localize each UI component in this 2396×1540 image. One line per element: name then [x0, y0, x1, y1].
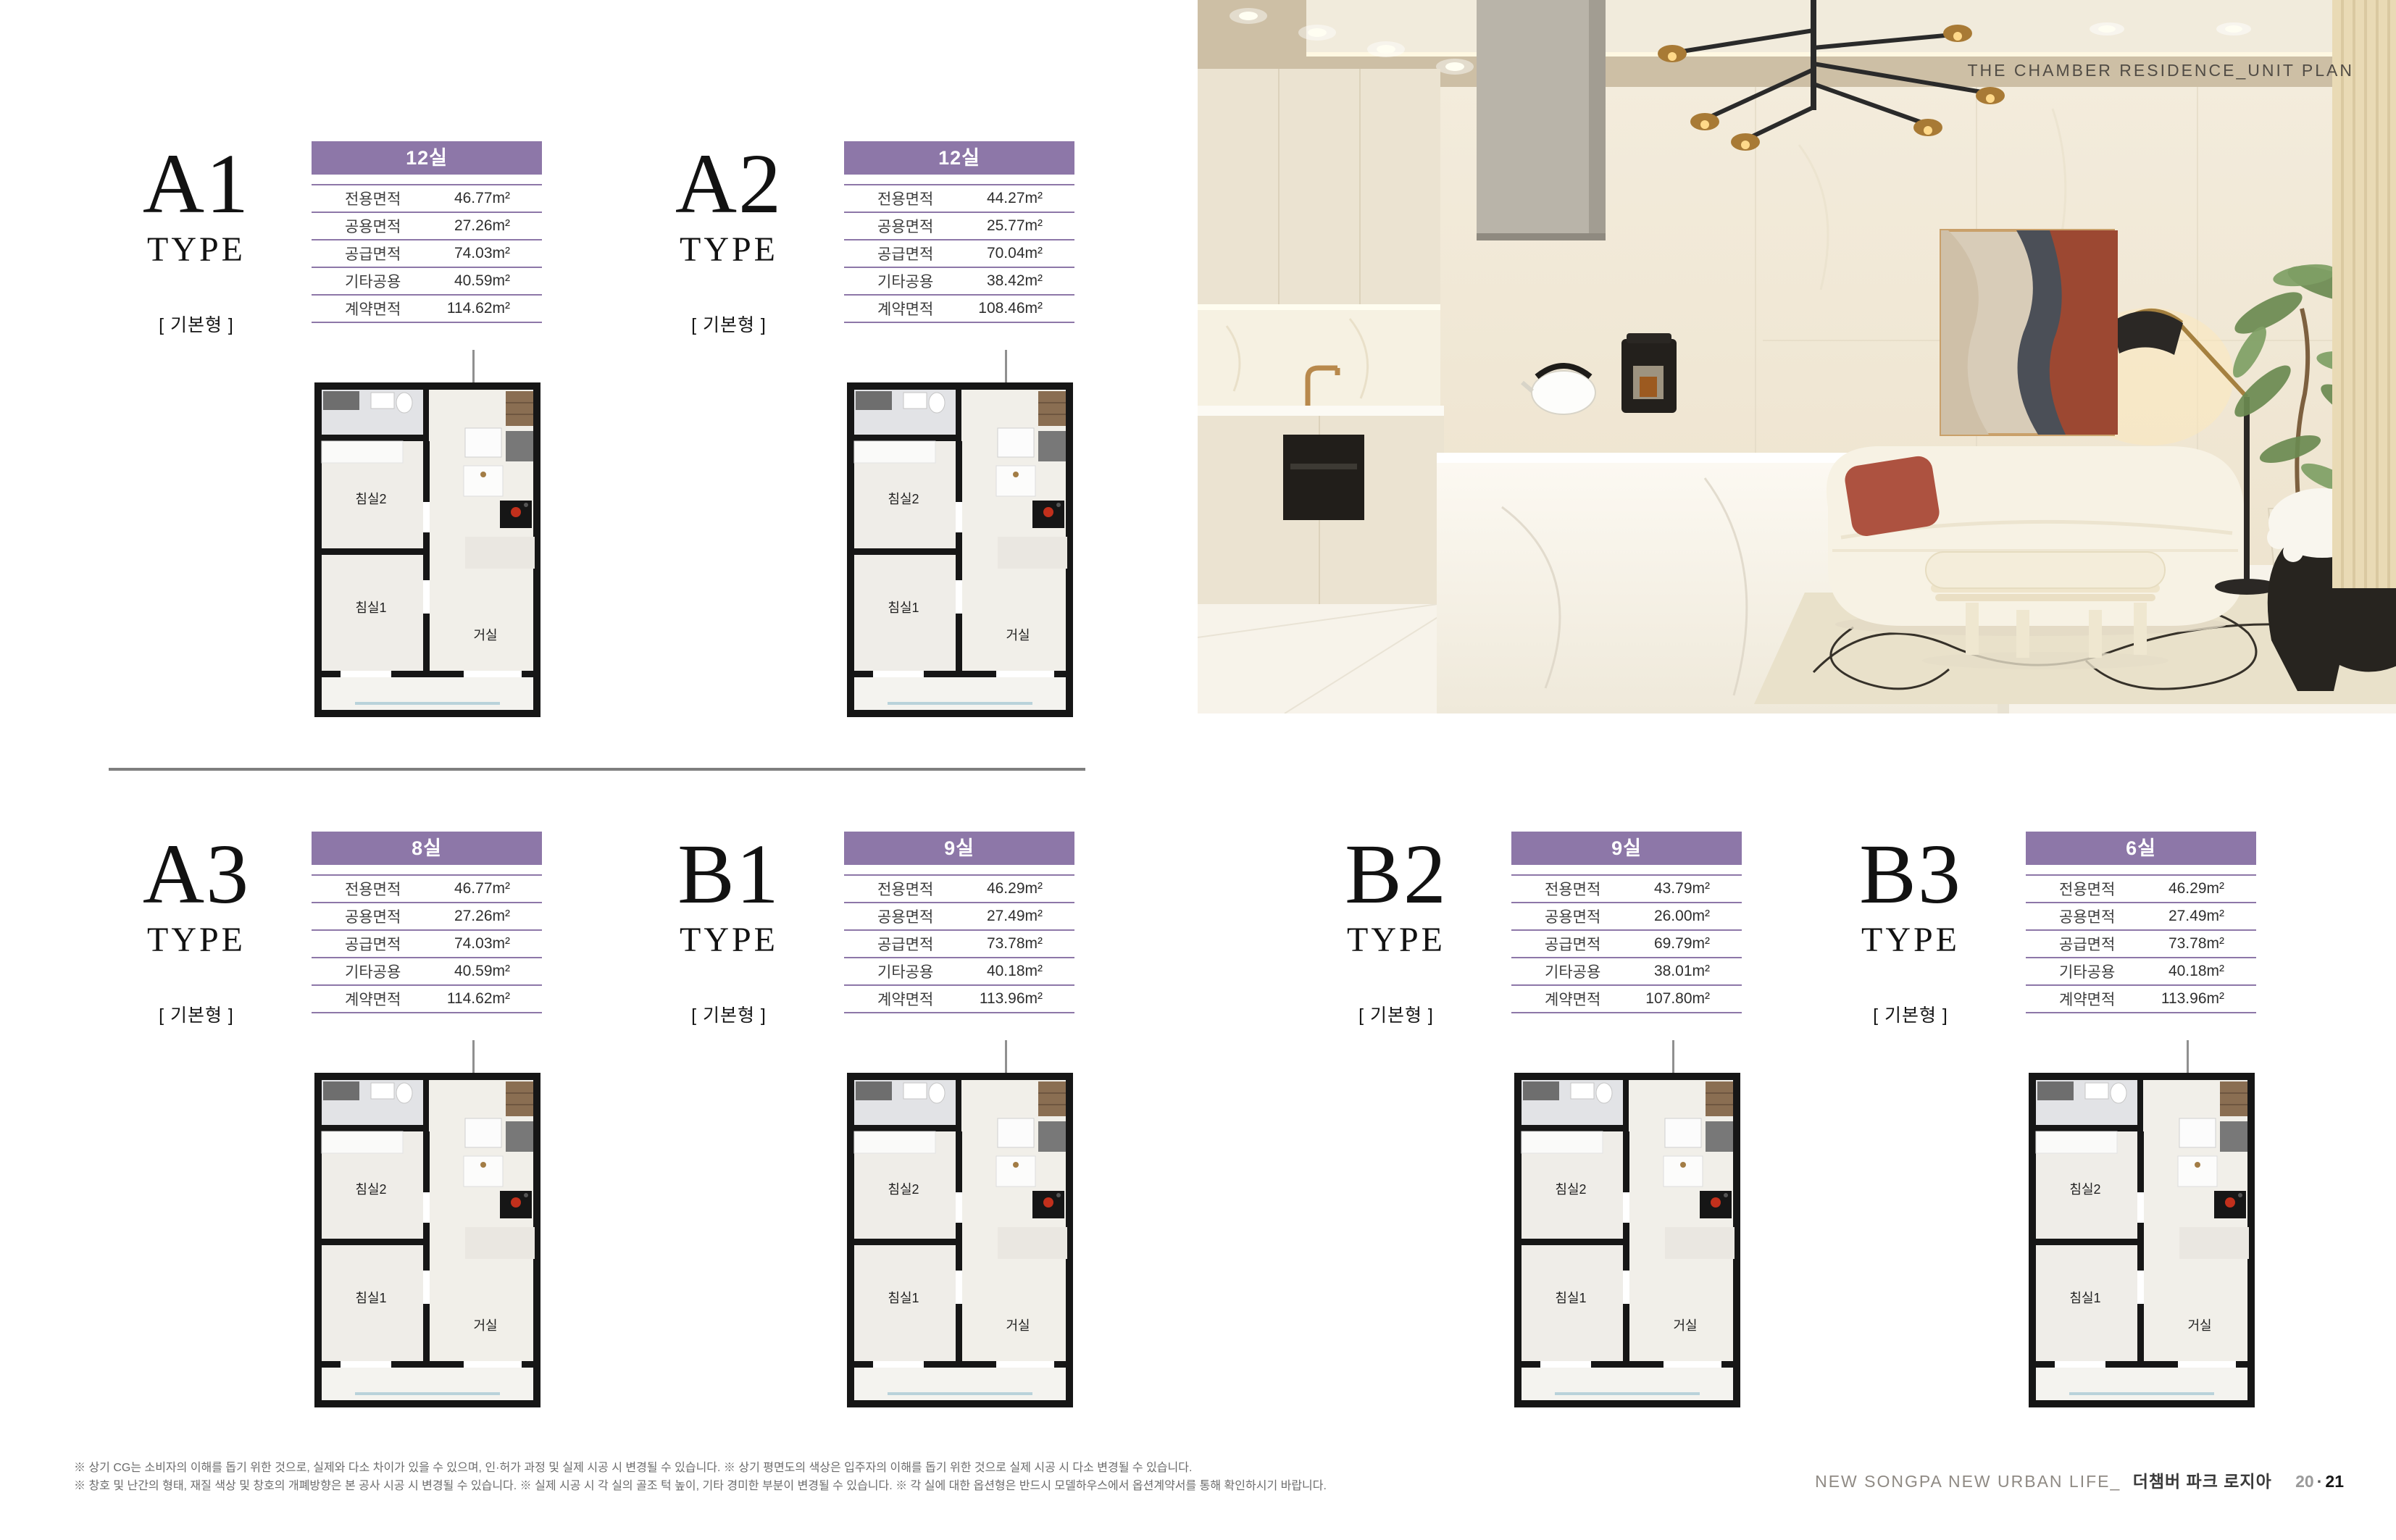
bedroom2-label: 침실2: [2069, 1182, 2100, 1197]
balcony-window: [2069, 1392, 2214, 1395]
table-row: 계약면적 108.46m²: [844, 296, 1074, 322]
table-row: 기타공용 40.59m²: [312, 958, 542, 986]
closet: [856, 1081, 892, 1100]
kitchen-sink-counter: [996, 1156, 1035, 1187]
living-label: 거실: [1673, 1318, 1697, 1333]
area-rows: 전용면적 46.77m² 공용면적 27.26m² 공급면적 74.03m² 기…: [312, 184, 542, 323]
room-count-header: 12실: [844, 141, 1074, 175]
island-counter: [1665, 1227, 1735, 1259]
bedroom1-door: [956, 580, 962, 614]
table-row: 계약면적 113.96m²: [2026, 986, 2256, 1012]
photo-caption: THE CHAMBER RESIDENCE_UNIT PLAN: [1968, 61, 2355, 80]
floor-plan-drawing: 침실2 침실1 거실: [844, 350, 1076, 721]
table-row: 계약면적 107.80m²: [1511, 986, 1742, 1012]
red-cushion: [1843, 454, 1942, 538]
room-count-header: 9실: [844, 832, 1074, 865]
wardrobe: [854, 441, 935, 463]
unit-variant-label: [ 기본형 ]: [101, 311, 291, 337]
area-row-value: 69.79m²: [1654, 935, 1742, 953]
area-row-label: 계약면적: [844, 298, 933, 319]
toilet: [396, 393, 412, 413]
area-row-label: 공급면적: [1511, 933, 1600, 955]
bath-side-wall: [423, 1080, 429, 1131]
island-counter: [465, 1227, 535, 1259]
area-row-label: 공급면적: [312, 933, 401, 955]
area-row-label: 전용면적: [312, 878, 401, 900]
bathroom-wall: [2036, 1125, 2142, 1131]
area-row-value: 27.49m²: [2168, 908, 2256, 925]
unit-title-block: B1 TYPE [ 기본형 ]: [634, 832, 824, 958]
unit-area-table: 12실 전용면적 44.27m² 공용면적 25.77m² 공급면적 70.04…: [844, 141, 1074, 323]
floor-plan-drawing: 침실2 침실1 거실: [312, 350, 543, 721]
footer-project: 더챔버 파크 로지아: [2133, 1472, 2272, 1491]
utility-box: [1706, 1121, 1733, 1152]
burner: [511, 507, 521, 517]
area-row-label: 계약면적: [312, 988, 401, 1010]
area-row-label: 공급면적: [844, 243, 933, 264]
unit-title-block: A2 TYPE [ 기본형 ]: [634, 141, 824, 267]
kitchen-sink-counter: [464, 1156, 503, 1187]
toilet: [929, 393, 945, 413]
unit-card: A3 TYPE [ 기본형 ] 8실 전용면적 46.77m² 공용면적 27.…: [101, 832, 580, 1512]
table-row: 계약면적 113.96m²: [844, 986, 1074, 1012]
area-row-value: 38.42m²: [987, 272, 1074, 290]
utility-box: [506, 1121, 533, 1152]
area-row-label: 공용면적: [2026, 905, 2115, 927]
wardrobe: [854, 1131, 935, 1153]
area-row-value: 46.77m²: [454, 880, 542, 897]
unit-type-suffix: TYPE: [1816, 923, 2005, 958]
kitchen-cabinet: [1706, 1081, 1733, 1116]
bedroom-divider-wall: [854, 1239, 962, 1245]
unit-type-title: A1: [101, 141, 291, 227]
area-row-value: 70.04m²: [987, 245, 1074, 262]
table-row: 계약면적 114.62m²: [312, 296, 542, 322]
page-footer: NEW SONGPA NEW URBAN LIFE_ 더챔버 파크 로지아 20…: [1815, 1468, 2344, 1492]
table-row: 전용면적 46.29m²: [2026, 876, 2256, 903]
balcony-floor: [1521, 1368, 1733, 1400]
floor-plan-drawing: 침실2 침실1 거실: [312, 1040, 543, 1411]
balcony-window: [355, 702, 500, 705]
bedroom2-door: [1623, 1192, 1629, 1223]
burner: [2225, 1197, 2235, 1208]
hall-wall: [956, 441, 962, 674]
area-row-value: 38.01m²: [1654, 963, 1742, 980]
unit-title-block: B2 TYPE [ 기본형 ]: [1301, 832, 1491, 958]
area-row-value: 27.49m²: [987, 908, 1074, 925]
area-row-value: 114.62m²: [447, 990, 542, 1008]
table-row: 계약면적 114.62m²: [312, 986, 542, 1012]
area-row-value: 26.00m²: [1654, 908, 1742, 925]
hall-wall: [2137, 1131, 2144, 1365]
kitchen-cabinet: [506, 1081, 533, 1116]
area-row-value: 113.96m²: [980, 990, 1074, 1008]
utility-box: [1038, 431, 1066, 461]
bedroom1-door: [2137, 1271, 2144, 1304]
island-counter: [465, 537, 535, 569]
unit-title-block: B3 TYPE [ 기본형 ]: [1816, 832, 2005, 958]
coffee-machine: [1621, 333, 1677, 413]
bath-side-wall: [1623, 1080, 1629, 1131]
plan-faucet: [480, 1162, 486, 1168]
table-row: 공급면적 70.04m²: [844, 240, 1074, 268]
brochure-page: THE CHAMBER RESIDENCE_UNIT PLAN A1 TYPE …: [0, 0, 2396, 1540]
section-divider: [109, 768, 1085, 771]
bath-sink: [903, 1083, 927, 1099]
kitchen-sink-counter: [1664, 1156, 1703, 1187]
page-number-left: 20: [2295, 1472, 2314, 1491]
unit-variant-label: [ 기본형 ]: [101, 1001, 291, 1027]
bath-sink: [2085, 1083, 2108, 1099]
antenna-line: [472, 1040, 475, 1074]
bedroom1-door: [423, 580, 430, 614]
table-row: 기타공용 40.18m²: [2026, 958, 2256, 986]
living-label: 거실: [2187, 1318, 2211, 1333]
bedroom1-door: [423, 1271, 430, 1304]
balcony-floor: [854, 677, 1066, 710]
bedroom-divider-wall: [322, 1239, 430, 1245]
room-count-header: 6실: [2026, 832, 2256, 865]
area-row-value: 40.59m²: [454, 963, 542, 980]
area-row-value: 114.62m²: [447, 300, 542, 317]
wardrobe: [2036, 1131, 2117, 1153]
bedroom-divider-wall: [322, 548, 430, 555]
closet: [1523, 1081, 1559, 1100]
island-counter: [998, 1227, 1067, 1259]
unit-type-title: B2: [1301, 832, 1491, 917]
bedroom2-door: [423, 1192, 430, 1223]
washer: [998, 1118, 1034, 1147]
kitchen-cabinets: [1198, 69, 1444, 604]
kitchen-cabinet: [2220, 1081, 2247, 1116]
area-row-value: 27.26m²: [454, 908, 542, 925]
area-row-label: 기타공용: [844, 961, 933, 982]
area-row-label: 기타공용: [844, 270, 933, 292]
bedroom2-door: [956, 502, 962, 532]
washer: [465, 428, 501, 457]
unit-card: B2 TYPE [ 기본형 ] 9실 전용면적 43.79m² 공용면적 26.…: [1301, 832, 1779, 1512]
unit-type-suffix: TYPE: [101, 923, 291, 958]
area-row-value: 40.59m²: [454, 272, 542, 290]
table-row: 공급면적 73.78m²: [844, 931, 1074, 958]
table-row: 공용면적 26.00m²: [1511, 903, 1742, 931]
hall-wall: [1623, 1131, 1629, 1365]
burner: [1711, 1197, 1721, 1208]
living-label: 거실: [473, 1318, 497, 1333]
closet: [2037, 1081, 2074, 1100]
unit-variant-label: [ 기본형 ]: [634, 311, 824, 337]
disclaimer-line-1: ※ 상기 CG는 소비자의 이해를 돕기 위한 것으로, 실제와 다소 차이가 …: [74, 1457, 1192, 1475]
table-row: 기타공용 40.59m²: [312, 268, 542, 296]
area-row-value: 25.77m²: [987, 217, 1074, 235]
bedroom2-door: [423, 502, 430, 532]
closet: [856, 391, 892, 410]
bath-sink: [903, 393, 927, 409]
area-row-value: 107.80m²: [1645, 990, 1742, 1008]
plan-faucet: [2195, 1162, 2200, 1168]
unit-type-title: B1: [634, 832, 824, 917]
area-row-label: 계약면적: [2026, 988, 2115, 1010]
island-counter: [998, 537, 1067, 569]
washer: [1665, 1118, 1701, 1147]
burner: [511, 1197, 521, 1208]
area-row-value: 73.78m²: [2168, 935, 2256, 953]
bathroom-wall: [854, 1125, 960, 1131]
antenna-line: [472, 350, 475, 383]
balcony-floor: [2036, 1368, 2247, 1400]
area-row-label: 전용면적: [2026, 878, 2115, 900]
area-row-label: 기타공용: [312, 961, 401, 982]
table-row: 공용면적 27.49m²: [2026, 903, 2256, 931]
kitchen-sink-counter: [2178, 1156, 2217, 1187]
unit-type-suffix: TYPE: [634, 233, 824, 267]
table-row: 기타공용 38.01m²: [1511, 958, 1742, 986]
burner: [1043, 507, 1053, 517]
plan-faucet: [480, 472, 486, 477]
area-row-label: 공급면적: [2026, 933, 2115, 955]
bedroom1-label: 침실1: [888, 600, 919, 615]
kitchen-cabinet: [1038, 391, 1066, 426]
area-rows: 전용면적 43.79m² 공용면적 26.00m² 공급면적 69.79m² 기…: [1511, 874, 1742, 1013]
bedroom1-label: 침실1: [1555, 1291, 1586, 1305]
area-rows: 전용면적 46.77m² 공용면적 27.26m² 공급면적 74.03m² 기…: [312, 874, 542, 1013]
table-row: 공급면적 69.79m²: [1511, 931, 1742, 958]
area-row-label: 전용면적: [1511, 878, 1600, 900]
area-row-label: 전용면적: [312, 188, 401, 209]
closet: [323, 391, 359, 410]
area-row-value: 27.26m²: [454, 217, 542, 235]
wardrobe: [322, 1131, 403, 1153]
utility-box: [2220, 1121, 2247, 1152]
area-row-label: 공용면적: [312, 215, 401, 237]
unit-type-title: A2: [634, 141, 824, 227]
bath-side-wall: [2137, 1080, 2143, 1131]
floor-plan: 침실2 침실1 거실: [312, 1040, 543, 1411]
bedroom1-label: 침실1: [2069, 1291, 2100, 1305]
interior-photo-illustration: THE CHAMBER RESIDENCE_UNIT PLAN: [1198, 0, 2396, 713]
washer: [998, 428, 1034, 457]
utility-box: [1038, 1121, 1066, 1152]
balcony-window: [888, 702, 1032, 705]
hall-wall: [956, 1131, 962, 1365]
curtain: [2332, 0, 2396, 588]
unit-type-title: A3: [101, 832, 291, 917]
balcony-window: [888, 1392, 1032, 1395]
table-row: 공용면적 27.49m²: [844, 903, 1074, 931]
area-row-value: 73.78m²: [987, 935, 1074, 953]
balcony-floor: [322, 1368, 533, 1400]
bedroom1-door: [1623, 1271, 1629, 1304]
washer: [2179, 1118, 2216, 1147]
area-row-label: 기타공용: [2026, 961, 2115, 982]
area-row-label: 전용면적: [844, 878, 933, 900]
cove-light: [1306, 52, 2396, 57]
toilet: [2111, 1083, 2126, 1103]
table-row: 공용면적 27.26m²: [312, 903, 542, 931]
table-row: 공급면적 74.03m²: [312, 240, 542, 268]
table-row: 전용면적 46.29m²: [844, 876, 1074, 903]
bathroom-wall: [854, 435, 960, 441]
interior-photo: THE CHAMBER RESIDENCE_UNIT PLAN: [1198, 0, 2396, 713]
area-row-value: 40.18m²: [2168, 963, 2256, 980]
floor-plan-drawing: 침실2 침실1 거실: [1511, 1040, 1743, 1411]
bedroom2-label: 침실2: [355, 1182, 386, 1197]
floor-plan: 침실2 침실1 거실: [844, 350, 1076, 721]
balcony-floor: [854, 1368, 1066, 1400]
utility-box: [506, 431, 533, 461]
unit-variant-label: [ 기본형 ]: [634, 1001, 824, 1027]
area-row-label: 공용면적: [1511, 905, 1600, 927]
unit-type-title: B3: [1816, 832, 2005, 917]
area-row-label: 기타공용: [312, 270, 401, 292]
unit-area-table: 9실 전용면적 43.79m² 공용면적 26.00m² 공급면적 69.79m…: [1511, 832, 1742, 1013]
kitchen-sink-counter: [996, 466, 1035, 496]
area-rows: 전용면적 44.27m² 공용면적 25.77m² 공급면적 70.04m² 기…: [844, 184, 1074, 323]
bath-side-wall: [423, 390, 429, 441]
area-row-value: 46.29m²: [2168, 880, 2256, 897]
unit-type-suffix: TYPE: [634, 923, 824, 958]
area-rows: 전용면적 46.29m² 공용면적 27.49m² 공급면적 73.78m² 기…: [844, 874, 1074, 1013]
bath-sink: [371, 393, 394, 409]
washer: [465, 1118, 501, 1147]
bath-side-wall: [956, 390, 961, 441]
unit-card: A1 TYPE [ 기본형 ] 12실 전용면적 46.77m² 공용면적 27…: [101, 141, 580, 822]
unit-variant-label: [ 기본형 ]: [1301, 1001, 1491, 1027]
unit-area-table: 8실 전용면적 46.77m² 공용면적 27.26m² 공급면적 74.03m…: [312, 832, 542, 1013]
area-row-label: 공용면적: [844, 905, 933, 927]
unit-type-suffix: TYPE: [1301, 923, 1491, 958]
area-row-value: 74.03m²: [454, 245, 542, 262]
bedroom1-label: 침실1: [355, 600, 386, 615]
footer-brand: NEW SONGPA NEW URBAN LIFE_: [1815, 1472, 2121, 1491]
antenna-line: [1672, 1040, 1674, 1074]
floor-plan: 침실2 침실1 거실: [312, 350, 543, 721]
table-row: 기타공용 38.42m²: [844, 268, 1074, 296]
area-row-label: 계약면적: [312, 298, 401, 319]
antenna-line: [2187, 1040, 2189, 1074]
kitchen-cabinet: [1038, 1081, 1066, 1116]
unit-card: B1 TYPE [ 기본형 ] 9실 전용면적 46.29m² 공용면적 27.…: [634, 832, 1112, 1512]
room-count-header: 8실: [312, 832, 542, 865]
bedroom1-door: [956, 1271, 962, 1304]
area-row-label: 기타공용: [1511, 961, 1600, 982]
table-row: 공급면적 73.78m²: [2026, 931, 2256, 958]
bedroom2-label: 침실2: [888, 1182, 919, 1197]
toilet: [929, 1083, 945, 1103]
living-label: 거실: [1006, 628, 1030, 643]
bedroom-divider-wall: [2036, 1239, 2144, 1245]
kitchen-cabinet: [506, 391, 533, 426]
table-row: 기타공용 40.18m²: [844, 958, 1074, 986]
table-row: 공급면적 74.03m²: [312, 931, 542, 958]
area-row-value: 46.77m²: [454, 190, 542, 207]
area-row-label: 공용면적: [844, 215, 933, 237]
unit-title-block: A1 TYPE [ 기본형 ]: [101, 141, 291, 267]
balcony-window: [1555, 1392, 1700, 1395]
bath-sink: [371, 1083, 394, 1099]
bath-side-wall: [956, 1080, 961, 1131]
floor-plan-drawing: 침실2 침실1 거실: [844, 1040, 1076, 1411]
area-row-value: 108.46m²: [978, 300, 1074, 317]
toilet: [1596, 1083, 1612, 1103]
page-numbers: 20·21: [2295, 1472, 2344, 1491]
hall-wall: [423, 1131, 430, 1365]
hall-wall: [423, 441, 430, 674]
antenna-line: [1005, 1040, 1007, 1074]
area-row-label: 공급면적: [312, 243, 401, 264]
area-row-label: 전용면적: [844, 188, 933, 209]
area-row-label: 공급면적: [844, 933, 933, 955]
kitchen-sink-counter: [464, 466, 503, 496]
wall-art: [1941, 230, 2118, 435]
plan-faucet: [1013, 1162, 1019, 1168]
page-number-right: 21: [2325, 1472, 2344, 1491]
table-row: 공용면적 25.77m²: [844, 213, 1074, 240]
area-row-value: 113.96m²: [2161, 990, 2256, 1008]
bedroom2-label: 침실2: [355, 492, 386, 506]
area-rows: 전용면적 46.29m² 공용면적 27.49m² 공급면적 73.78m² 기…: [2026, 874, 2256, 1013]
living-label: 거실: [473, 628, 497, 643]
bedroom-divider-wall: [1521, 1239, 1629, 1245]
balcony-window: [355, 1392, 500, 1395]
table-row: 전용면적 44.27m²: [844, 185, 1074, 213]
bedroom2-label: 침실2: [1555, 1182, 1586, 1197]
antenna-line: [1005, 350, 1007, 383]
burner: [1043, 1197, 1053, 1208]
unit-card: A2 TYPE [ 기본형 ] 12실 전용면적 44.27m² 공용면적 25…: [634, 141, 1112, 822]
bedroom1-label: 침실1: [888, 1291, 919, 1305]
bedroom2-door: [956, 1192, 962, 1223]
wardrobe: [322, 441, 403, 463]
bedroom-divider-wall: [854, 548, 962, 555]
floor-plan: 침실2 침실1 거실: [2026, 1040, 2258, 1411]
area-row-label: 계약면적: [1511, 988, 1600, 1010]
island-counter: [2179, 1227, 2249, 1259]
area-row-label: 계약면적: [844, 988, 933, 1010]
range-hood: [1477, 0, 1606, 240]
area-row-value: 43.79m²: [1654, 880, 1742, 897]
room-count-header: 12실: [312, 141, 542, 175]
balcony-floor: [322, 677, 533, 710]
unit-variant-label: [ 기본형 ]: [1816, 1001, 2005, 1027]
table-row: 전용면적 46.77m²: [312, 185, 542, 213]
wardrobe: [1521, 1131, 1603, 1153]
area-row-value: 44.27m²: [987, 190, 1074, 207]
floor-plan-drawing: 침실2 침실1 거실: [2026, 1040, 2258, 1411]
table-row: 전용면적 46.77m²: [312, 876, 542, 903]
unit-area-table: 6실 전용면적 46.29m² 공용면적 27.49m² 공급면적 73.78m…: [2026, 832, 2256, 1013]
plan-faucet: [1680, 1162, 1686, 1168]
bathroom-wall: [322, 1125, 427, 1131]
unit-area-table: 12실 전용면적 46.77m² 공용면적 27.26m² 공급면적 74.03…: [312, 141, 542, 323]
bedroom2-label: 침실2: [888, 492, 919, 506]
living-label: 거실: [1006, 1318, 1030, 1333]
toilet: [396, 1083, 412, 1103]
area-row-label: 공용면적: [312, 905, 401, 927]
bathroom-wall: [1521, 1125, 1627, 1131]
unit-title-block: A3 TYPE [ 기본형 ]: [101, 832, 291, 958]
bedroom1-label: 침실1: [355, 1291, 386, 1305]
wall-oven: [1283, 435, 1364, 520]
bathroom-wall: [322, 435, 427, 441]
area-row-value: 46.29m²: [987, 880, 1074, 897]
disclaimer-line-2: ※ 창호 및 난간의 형태, 재질 색상 및 창호의 개폐방향은 본 공사 시공…: [74, 1476, 1327, 1493]
bath-sink: [1571, 1083, 1594, 1099]
bedroom2-door: [2137, 1192, 2144, 1223]
table-row: 공용면적 27.26m²: [312, 213, 542, 240]
plan-faucet: [1013, 472, 1019, 477]
page-number-separator: ·: [2317, 1472, 2323, 1491]
